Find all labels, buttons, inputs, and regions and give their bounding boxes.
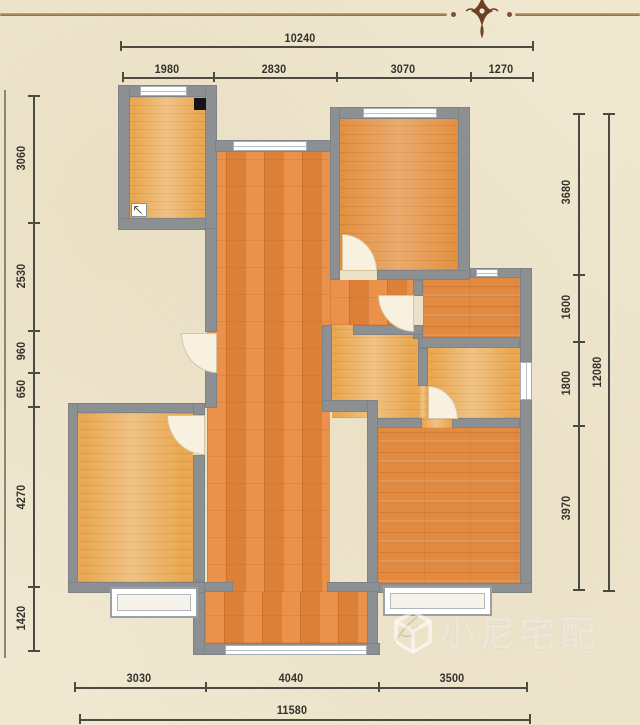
header-flourish-icon [459, 0, 505, 39]
dim-tick [28, 586, 40, 588]
dim-tick [28, 330, 40, 332]
wall [322, 325, 332, 405]
dim-label: 650 [14, 380, 28, 399]
window [225, 645, 367, 655]
wall [452, 418, 520, 428]
dim-tick [28, 372, 40, 374]
door-arc-entry [181, 333, 217, 373]
dim-tick [573, 113, 585, 115]
wall [205, 371, 217, 408]
window [520, 362, 532, 400]
dim-label: 3680 [559, 180, 573, 205]
window [476, 269, 498, 277]
dim-tick [603, 113, 615, 115]
floor-hallway-patch [418, 386, 428, 418]
floor-drain-icon [131, 203, 147, 217]
dim-label: 3030 [127, 671, 152, 685]
wall [458, 107, 470, 280]
dim-line-bottom-segments [74, 687, 527, 689]
dim-line-left [33, 95, 35, 652]
dim-tick [336, 72, 338, 82]
wall [205, 85, 217, 230]
cube-logo-icon [392, 609, 434, 655]
header-rule-right [515, 13, 640, 16]
wall [68, 403, 78, 593]
dim-tick [378, 682, 380, 692]
wall [193, 455, 205, 582]
dim-tick [470, 72, 472, 82]
flue-black-square-icon [194, 98, 206, 110]
wall [520, 268, 532, 593]
dim-label: 3070 [391, 62, 416, 76]
dim-line-top-total [120, 46, 533, 48]
dim-tick [526, 682, 528, 692]
dim-label: 960 [14, 342, 28, 361]
wall [193, 403, 205, 415]
dim-tick [28, 95, 40, 97]
dim-tick [603, 590, 615, 592]
wall [367, 400, 378, 592]
dim-tick [120, 41, 122, 51]
wall [118, 218, 217, 230]
bay-window-left-bedroom [110, 587, 198, 618]
dim-tick [28, 222, 40, 224]
wall [68, 403, 205, 413]
dim-tick [532, 72, 534, 82]
window [140, 86, 187, 96]
dim-tick [529, 714, 531, 724]
wall [205, 228, 217, 332]
wall [327, 582, 380, 592]
dim-tick [573, 425, 585, 427]
dim-label-bottom-total: 11580 [277, 703, 307, 717]
floor-bathroom-1 [423, 278, 520, 337]
dim-tick [28, 406, 40, 408]
dim-label-top-total: 10240 [285, 31, 316, 45]
header-rule-left [0, 13, 447, 16]
floor-balcony [205, 592, 367, 643]
dim-tick [213, 72, 215, 82]
dim-label: 4270 [14, 485, 28, 510]
dim-label: 1600 [559, 295, 573, 320]
floor-doorway-patch [422, 418, 452, 428]
dim-line-right-total [608, 113, 610, 592]
wall [377, 418, 422, 428]
dim-tick [28, 650, 40, 652]
left-border-line [4, 90, 6, 658]
dim-label: 4040 [279, 671, 304, 685]
dim-label: 1980 [155, 62, 180, 76]
header-dot-right [507, 12, 512, 17]
wall [377, 270, 470, 280]
wall [418, 348, 428, 386]
window [363, 108, 437, 118]
dim-line-right-segments [578, 113, 580, 590]
dim-tick [205, 682, 207, 692]
dim-tick [532, 41, 534, 51]
dim-label: 1420 [14, 606, 28, 631]
dim-label: 3060 [14, 146, 28, 171]
dim-label: 1270 [489, 62, 514, 76]
dim-tick [573, 589, 585, 591]
header-dot-left [451, 12, 456, 17]
floor-laundry-room [130, 97, 207, 218]
dim-label-right-total: 12080 [590, 357, 604, 388]
dim-label: 3500 [440, 671, 465, 685]
floorplan-canvas: 10240 1980 2830 3070 1270 3060 2530 960 … [0, 0, 640, 725]
dim-tick [122, 72, 124, 82]
floor-bedroom-master [378, 428, 520, 583]
dim-label: 2530 [14, 264, 28, 289]
dim-tick [573, 341, 585, 343]
wall [330, 107, 340, 280]
dim-label: 2830 [262, 62, 287, 76]
wall [413, 280, 423, 296]
wall [418, 337, 520, 348]
dim-tick [573, 274, 585, 276]
dim-label: 1800 [559, 371, 573, 396]
floor-living-room [207, 152, 330, 592]
wall [118, 85, 130, 230]
watermark: 小尼宅配 [392, 606, 600, 657]
dim-label: 3970 [559, 496, 573, 521]
window [233, 141, 307, 151]
watermark-text: 小尼宅配 [440, 606, 600, 657]
dim-tick [79, 714, 81, 724]
dim-line-bottom-total [79, 719, 530, 721]
dim-tick [74, 682, 76, 692]
